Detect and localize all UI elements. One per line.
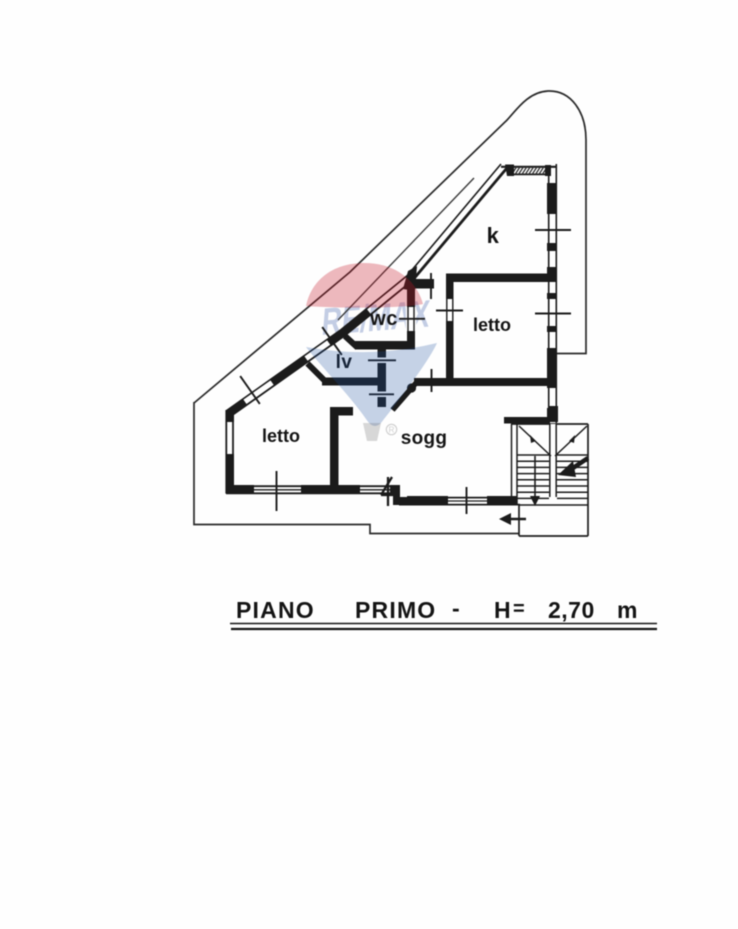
svg-text:m: m (617, 597, 637, 623)
svg-text:2,70: 2,70 (548, 597, 595, 623)
svg-text:wc: wc (369, 308, 398, 330)
svg-text:-: - (452, 595, 460, 621)
svg-text:k: k (487, 223, 500, 248)
svg-text:R: R (389, 426, 395, 435)
svg-text:PIANO: PIANO (236, 597, 315, 623)
svg-text:letto: letto (473, 315, 511, 335)
svg-text:=: = (513, 598, 525, 620)
svg-text:H: H (494, 597, 511, 623)
svg-text:sogg: sogg (401, 428, 448, 449)
svg-text:letto: letto (262, 426, 300, 446)
svg-text:PRIMO: PRIMO (355, 597, 436, 623)
